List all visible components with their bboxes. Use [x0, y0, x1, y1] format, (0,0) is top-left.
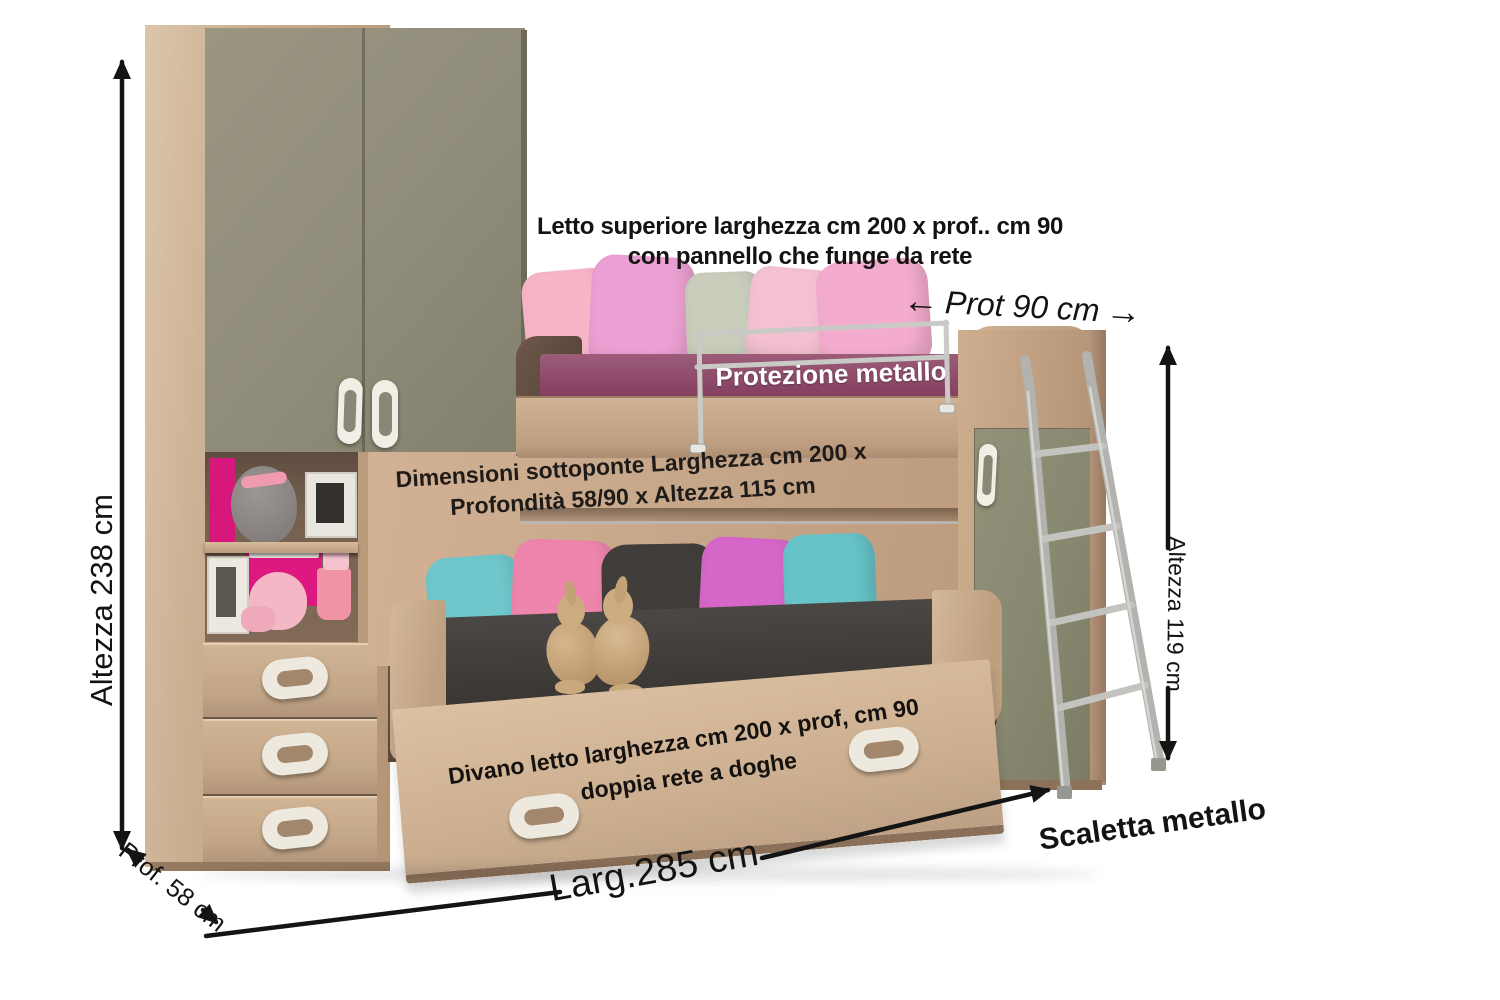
- upper-depth-text: Prot 90 cm: [944, 282, 1101, 330]
- guard-rail-label: Protezione metallo: [700, 355, 963, 394]
- furniture-diagram: Letto superiore larghezza cm 200 x prof.…: [0, 0, 1500, 1000]
- upper-bed-label-line1: Letto superiore larghezza cm 200 x prof.…: [510, 212, 1090, 242]
- upper-bed-label: Letto superiore larghezza cm 200 x prof.…: [510, 212, 1090, 272]
- upper-bed-label-line2: con pannello che funge da rete: [510, 242, 1090, 272]
- total-height-label: Altezza 238 cm: [83, 430, 123, 770]
- width-285-line-right: [762, 790, 1048, 858]
- arrow-right-icon: →: [1104, 288, 1142, 335]
- ladder-foot: [1057, 786, 1072, 799]
- ladder-foot: [1151, 758, 1166, 771]
- rail-foot: [939, 404, 955, 413]
- metal-ladder: [1025, 356, 1166, 799]
- arrow-left-icon: ←: [902, 277, 940, 324]
- ladder-height-label: Altezza 119 cm: [1160, 504, 1192, 724]
